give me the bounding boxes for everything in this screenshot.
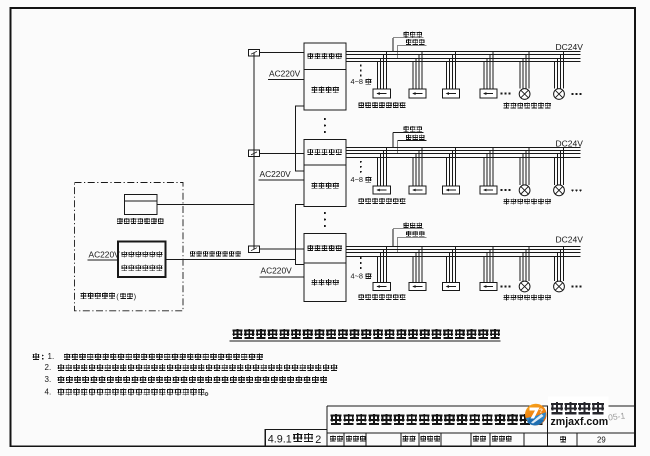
svg-text:05-1: 05-1 bbox=[608, 410, 626, 422]
svg-text:DC24V: DC24V bbox=[556, 139, 584, 149]
svg-text:29: 29 bbox=[597, 435, 606, 444]
svg-text:4~8: 4~8 bbox=[351, 272, 364, 281]
svg-text:2: 2 bbox=[315, 434, 321, 446]
svg-text:4~8: 4~8 bbox=[351, 175, 364, 184]
svg-text:zmjaxf.com: zmjaxf.com bbox=[551, 416, 609, 428]
svg-text:4.9.1: 4.9.1 bbox=[268, 434, 292, 446]
svg-text:3.: 3. bbox=[45, 375, 52, 384]
svg-text:4.: 4. bbox=[45, 388, 52, 397]
svg-text:DC24V: DC24V bbox=[556, 42, 584, 52]
svg-text:AC220V: AC220V bbox=[269, 69, 301, 79]
svg-text:4~8: 4~8 bbox=[351, 77, 364, 86]
svg-text:2.: 2. bbox=[45, 363, 52, 372]
svg-text:AC220V: AC220V bbox=[260, 169, 292, 179]
svg-text:AC220V: AC220V bbox=[261, 266, 293, 276]
svg-text:AC220V: AC220V bbox=[89, 250, 121, 260]
svg-text:DC24V: DC24V bbox=[556, 235, 584, 245]
svg-text:?: ? bbox=[539, 408, 543, 415]
svg-text:1.: 1. bbox=[48, 352, 55, 361]
